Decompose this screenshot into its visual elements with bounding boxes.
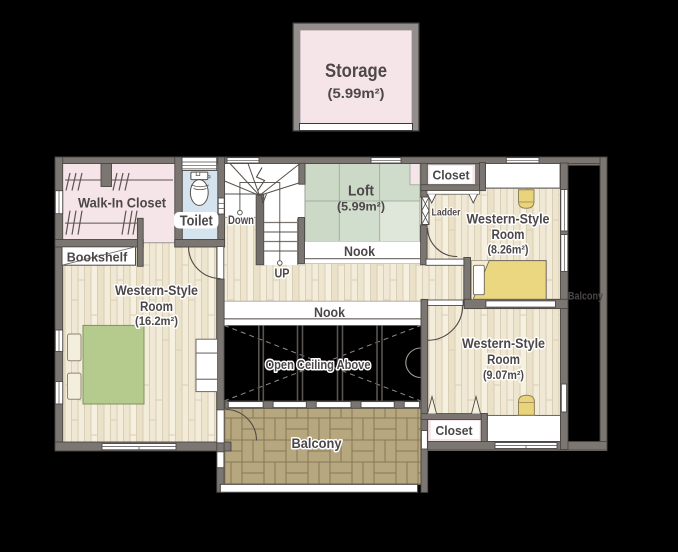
svg-text:Walk-In Closet: Walk-In Closet bbox=[78, 196, 166, 211]
svg-text:(9.07m²): (9.07m²) bbox=[483, 370, 524, 382]
svg-text:Closet: Closet bbox=[436, 423, 474, 438]
svg-text:Ladder: Ladder bbox=[432, 207, 461, 218]
svg-text:(8.26m²): (8.26m²) bbox=[488, 245, 529, 257]
svg-text:(5.99m²): (5.99m²) bbox=[328, 85, 385, 101]
svg-text:Nook: Nook bbox=[314, 305, 345, 320]
svg-text:Room: Room bbox=[487, 352, 520, 367]
svg-text:Western-Style: Western-Style bbox=[462, 336, 545, 351]
svg-text:Toilet: Toilet bbox=[180, 213, 213, 229]
svg-text:Loft: Loft bbox=[348, 182, 374, 199]
svg-text:(5.99m²): (5.99m²) bbox=[337, 199, 385, 213]
svg-text:Balcony: Balcony bbox=[568, 290, 604, 302]
svg-text:Western-Style: Western-Style bbox=[115, 283, 198, 298]
svg-text:Western-Style: Western-Style bbox=[467, 212, 550, 227]
svg-text:UP: UP bbox=[275, 267, 290, 281]
svg-text:Bookshelf: Bookshelf bbox=[67, 251, 128, 265]
svg-text:Storage: Storage bbox=[325, 60, 387, 82]
svg-text:Room: Room bbox=[492, 227, 525, 242]
svg-text:Closet: Closet bbox=[433, 167, 471, 182]
svg-text:Nook: Nook bbox=[344, 244, 375, 259]
svg-text:(16.2m²): (16.2m²) bbox=[135, 316, 178, 328]
svg-text:Down: Down bbox=[228, 215, 254, 227]
svg-text:Open Ceiling Above: Open Ceiling Above bbox=[266, 358, 371, 372]
svg-text:Room: Room bbox=[140, 299, 173, 314]
svg-text:Balcony: Balcony bbox=[292, 436, 342, 451]
